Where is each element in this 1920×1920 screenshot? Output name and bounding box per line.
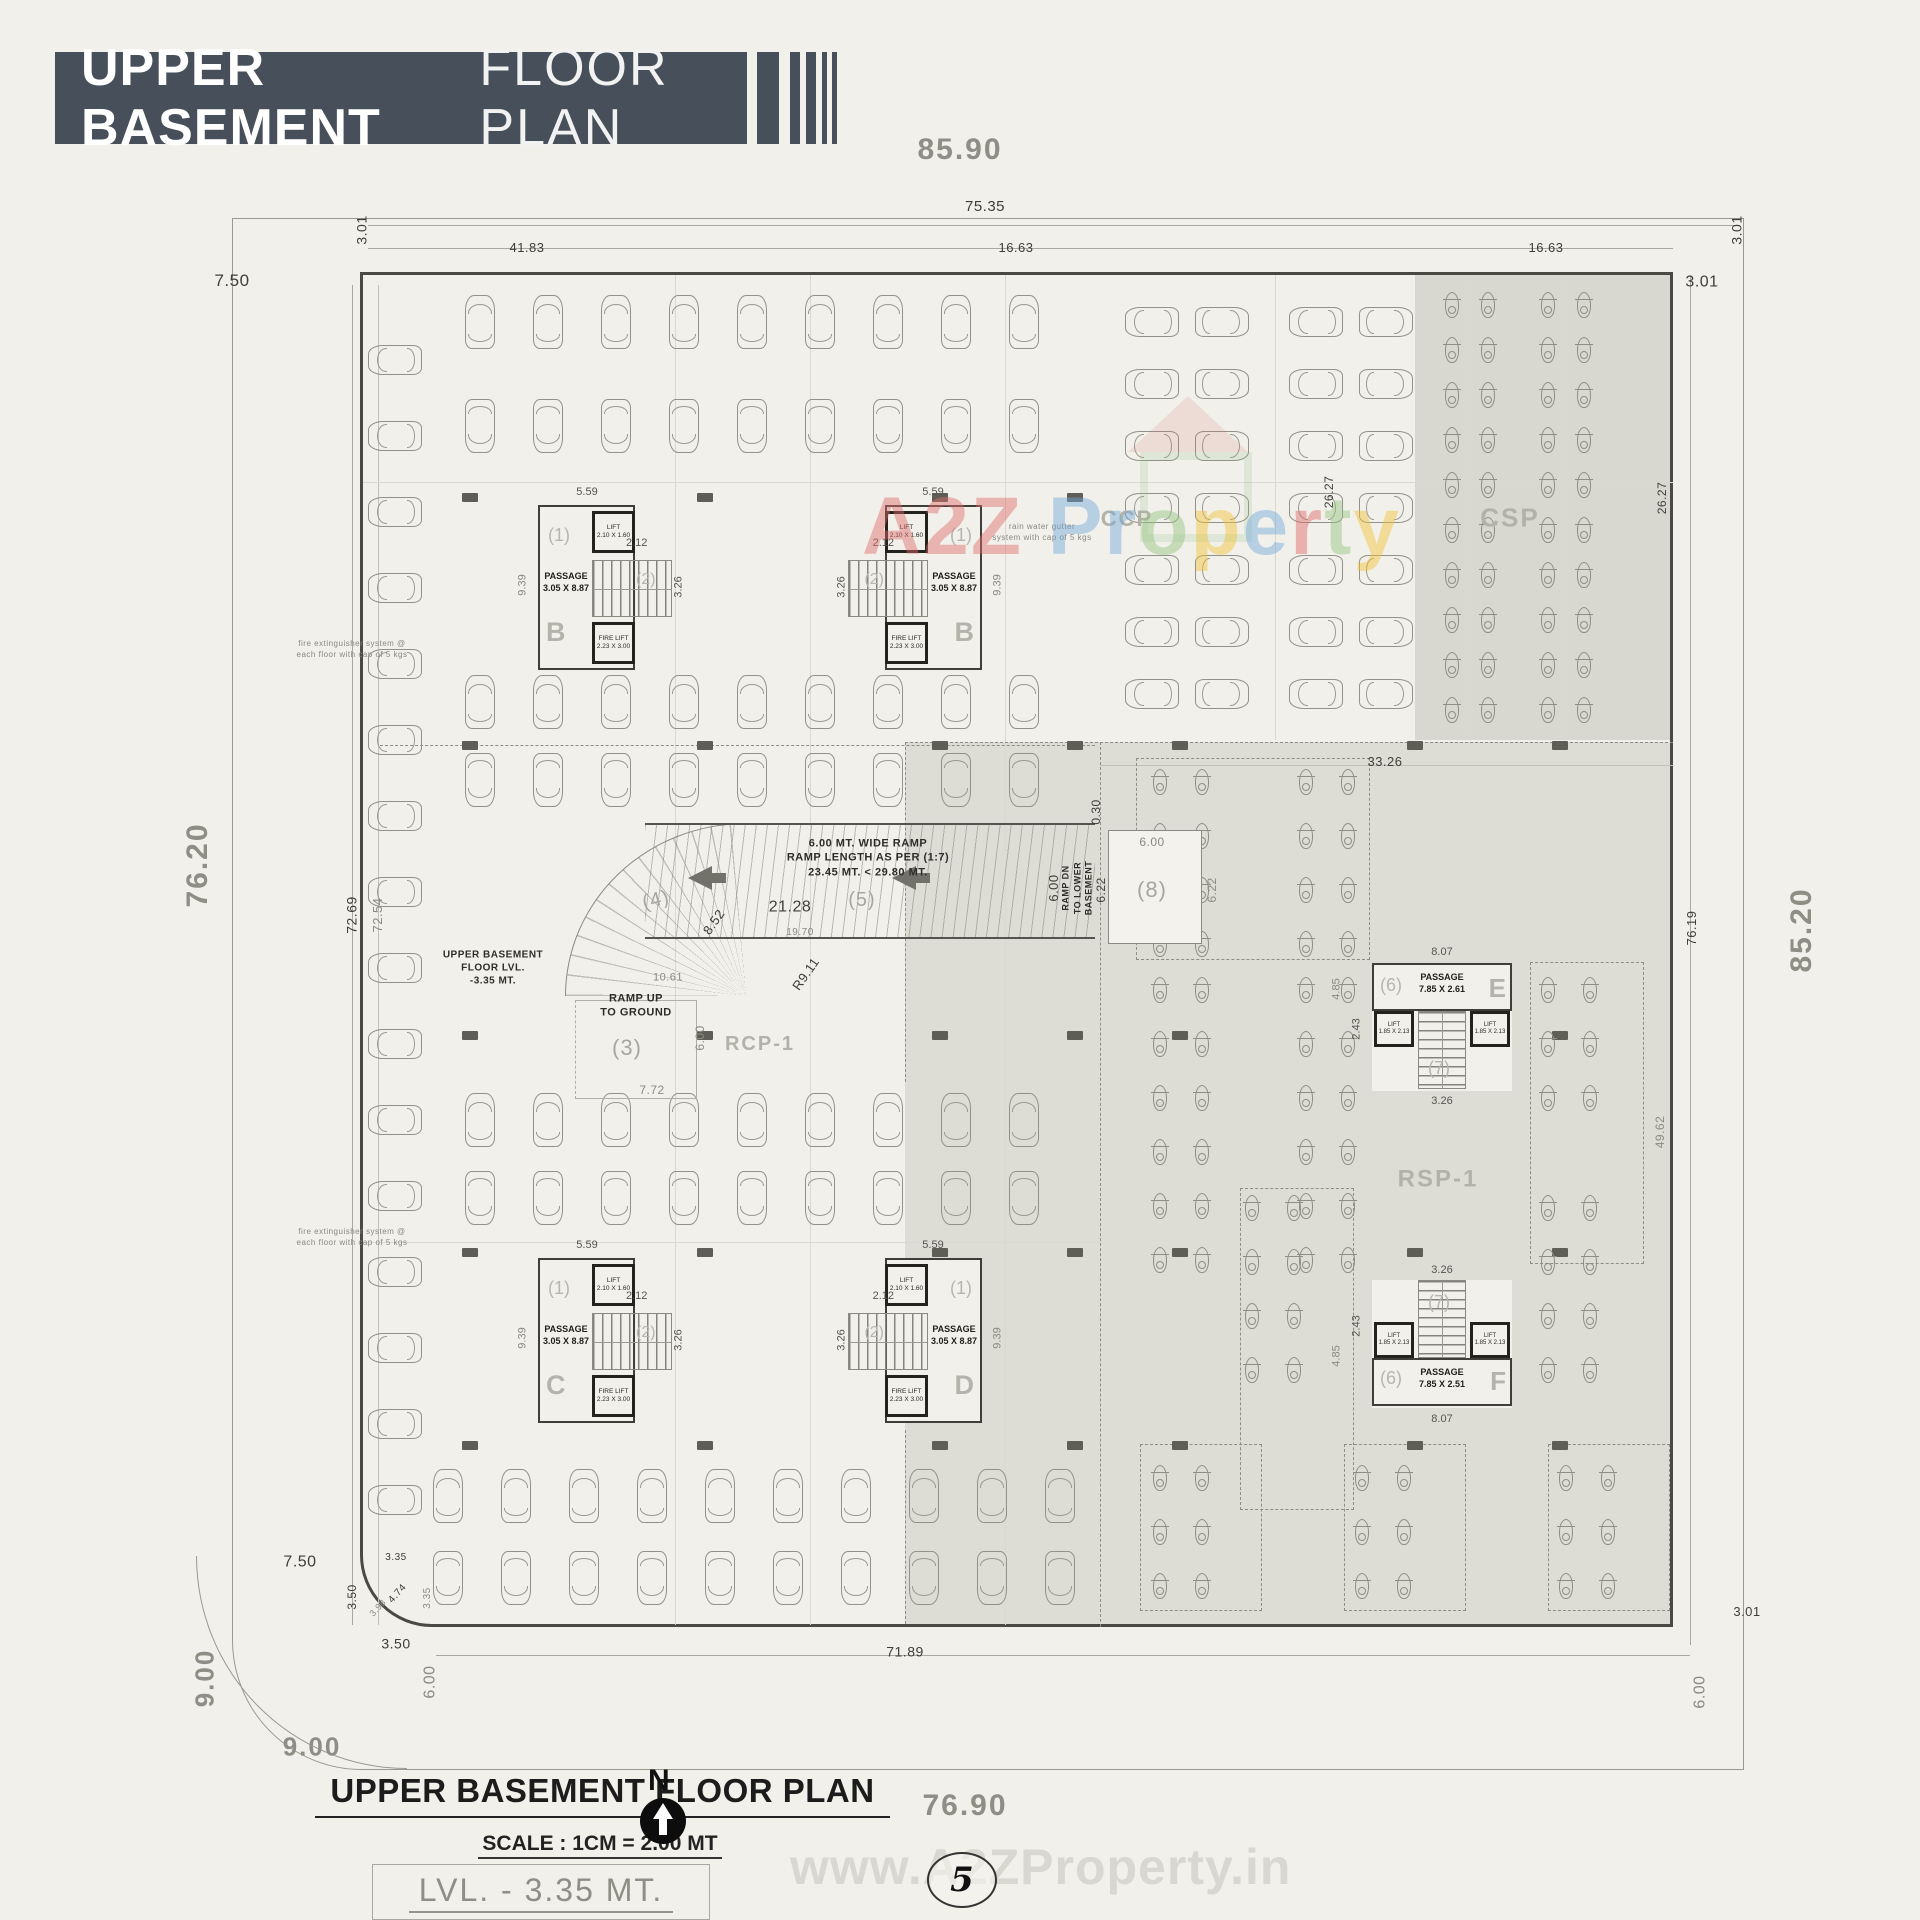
dim-label: 3.50 (381, 1636, 410, 1653)
dimension-label-layer: 85.9075.357.5041.8316.6316.633.013.013.0… (0, 0, 1920, 1920)
watermark-site-url: www.A2ZProperty.in (790, 1838, 1291, 1896)
dim-label: 6.00 (693, 1025, 707, 1050)
dim-label: 76.19 (1684, 910, 1700, 945)
watermark-letter: r (1290, 481, 1324, 572)
dim-label: 7.72 (639, 1083, 664, 1097)
watermark-letter: e (1243, 481, 1291, 572)
dim-label: 71.89 (886, 1644, 924, 1661)
dim-label: (5) (848, 888, 875, 912)
dim-label: 6.00 (1046, 874, 1062, 901)
dim-label: 6.22 (1094, 877, 1108, 902)
dim-label: 3.01 (1733, 1604, 1760, 1620)
dim-label: 75.35 (965, 198, 1005, 216)
north-arrow-icon (640, 1798, 686, 1844)
dim-label: 10.61 (653, 971, 683, 984)
dim-label: 4.74 (386, 1582, 409, 1606)
dim-label: fire extinguisher system @ each floor wi… (297, 639, 408, 661)
dim-label: (8) (1137, 877, 1167, 903)
dim-label: 3.35 (385, 1552, 406, 1564)
plan-title: UPPER BASEMENT FLOOR PLAN (315, 1772, 890, 1818)
dim-label: 3.50 (345, 1584, 359, 1609)
watermark-letter: A (862, 481, 923, 572)
dim-label: 0.30 (1089, 799, 1103, 824)
watermark-letter: Z (971, 481, 1023, 572)
dim-label: (3) (612, 1035, 642, 1061)
watermark-letter: t (1324, 481, 1353, 572)
dim-label: fire extinguisher system @ each floor wi… (297, 1227, 408, 1249)
dim-label: 41.83 (509, 240, 544, 256)
dim-label: RSP-1 (1398, 1166, 1479, 1195)
dim-label: 3.35 (422, 1587, 434, 1608)
dim-label: R9.11 (789, 955, 823, 994)
dim-label: 49.62 (1653, 1116, 1667, 1149)
dim-label: RAMP DN TO LOWER BASEMENT (1060, 861, 1095, 916)
dim-label: 3.01 (354, 215, 371, 244)
dim-label: 6.00 (1690, 1675, 1709, 1708)
watermark-letter: y (1353, 481, 1401, 572)
dim-label: UPPER BASEMENT FLOOR LVL. -3.35 MT. (443, 949, 543, 988)
level-box: LVL. - 3.35 MT. (372, 1864, 710, 1920)
page-number-badge: 5 (927, 1852, 997, 1908)
watermark-letter: 2 (923, 481, 971, 572)
dim-label: 72.54 (370, 897, 386, 932)
dim-label: 9.00 (283, 1731, 342, 1762)
dim-label: 6.22 (1205, 877, 1219, 902)
dim-label: 21.28 (769, 897, 812, 916)
dim-label: CSP (1480, 502, 1539, 533)
watermark-brand: A2Z Property (862, 480, 1401, 574)
plan-scale-text: SCALE : 1CM = 2.00 MT (478, 1832, 721, 1859)
dim-label: 9.00 (189, 1649, 220, 1708)
dim-label: 6.00 MT. WIDE RAMP RAMP LENGTH AS PER (1… (787, 837, 949, 880)
dim-label: 72.69 (344, 896, 361, 934)
dim-label: RCP-1 (725, 1032, 795, 1056)
dim-label: 6.00 (420, 1665, 439, 1698)
dim-label: 76.20 (180, 822, 216, 907)
dim-label: 7.50 (283, 1552, 316, 1571)
dim-label: 26.27 (1655, 482, 1669, 515)
watermark-letter (1023, 481, 1048, 572)
level-text: LVL. - 3.35 MT. (409, 1872, 674, 1913)
dim-label: 19.70 (786, 927, 814, 939)
dim-label: 33.26 (1367, 754, 1402, 770)
dim-label: (4) (640, 885, 673, 915)
dim-label: RAMP UP TO GROUND (600, 992, 672, 1021)
dim-label: 3.01 (1729, 215, 1746, 244)
watermark-letter: P (1048, 481, 1105, 572)
dim-label: 7.50 (214, 271, 249, 291)
dim-label: 76.90 (922, 1788, 1007, 1824)
dim-label: 8.52 (700, 906, 728, 937)
watermark-letter: r (1104, 481, 1138, 572)
dim-label: 3.01 (1685, 272, 1718, 291)
north-label: N (648, 1764, 670, 1798)
dim-label: 16.63 (1528, 240, 1563, 256)
watermark-letter: p (1190, 481, 1242, 572)
watermark-letter: o (1138, 481, 1190, 572)
dim-label: 85.20 (1784, 887, 1820, 972)
dim-label: 16.63 (998, 240, 1033, 256)
dim-label: 85.90 (917, 132, 1002, 168)
plan-scale: SCALE : 1CM = 2.00 MT (400, 1832, 800, 1856)
dim-label: 6.00 (1139, 835, 1164, 849)
dim-label: 3.98 (367, 1597, 388, 1619)
